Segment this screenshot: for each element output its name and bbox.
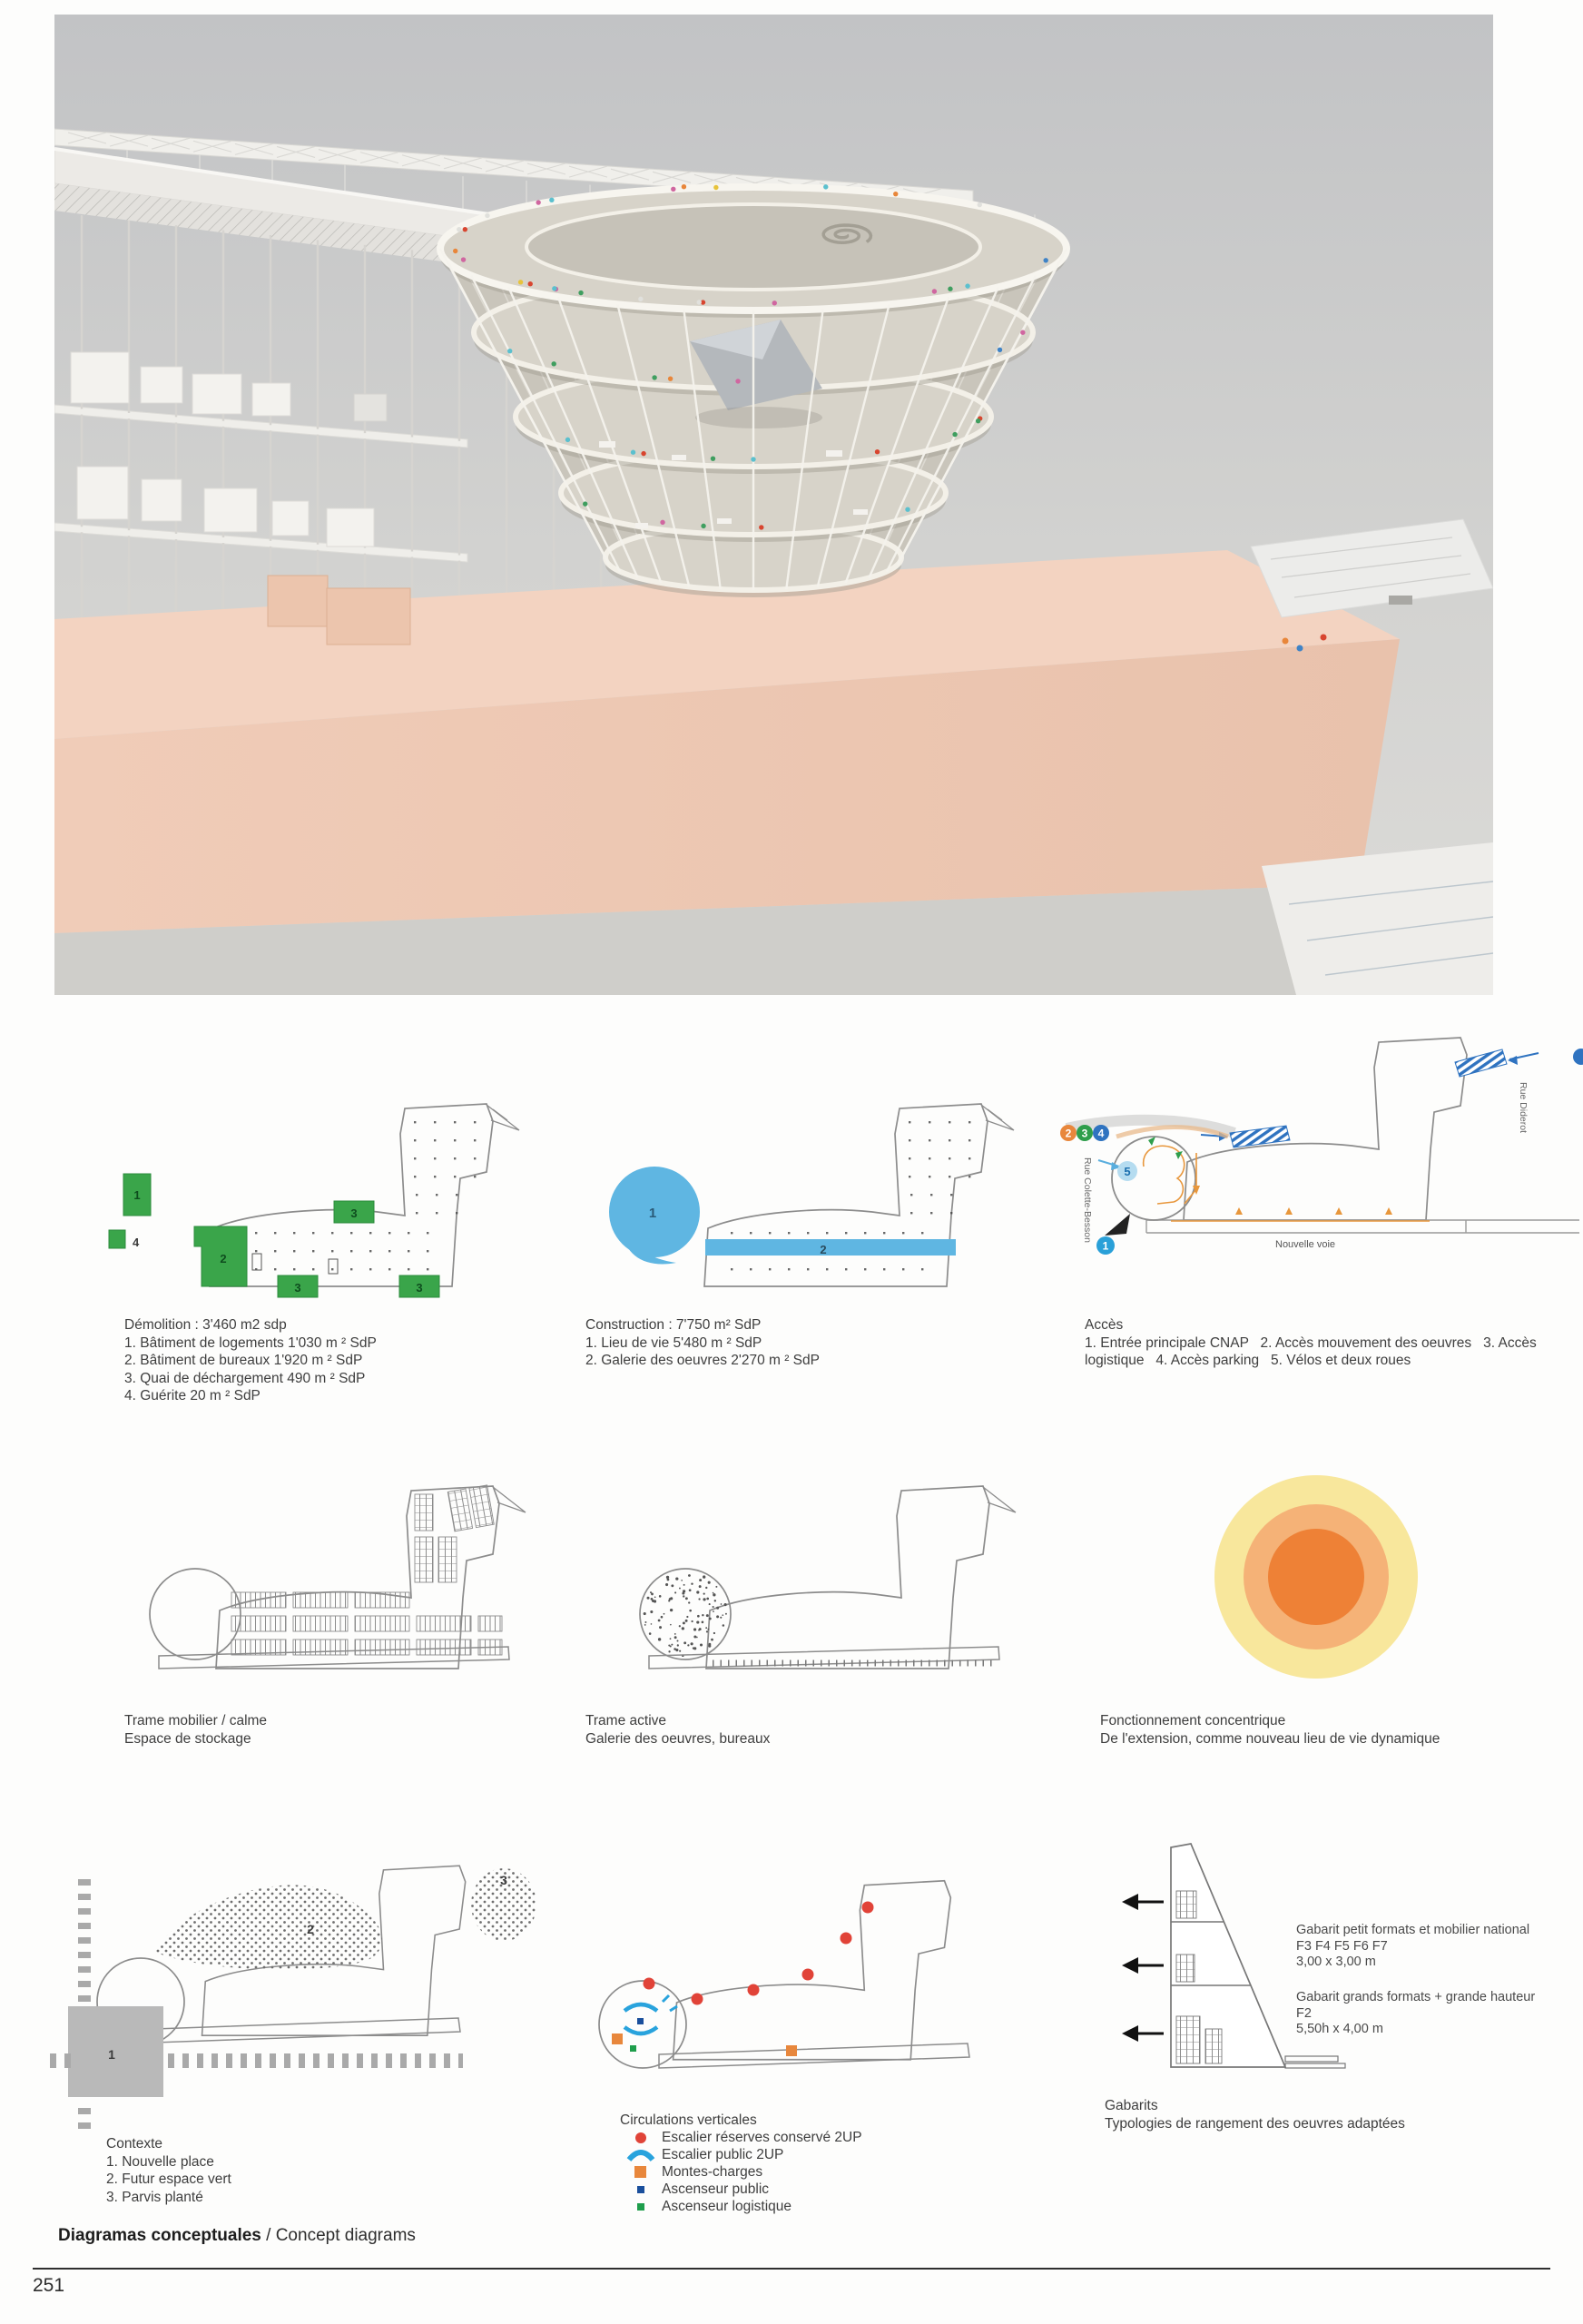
footer-title-rest: / Concept diagrams	[261, 2226, 416, 2245]
legend-label: Escalier réserves conservé 2UP	[662, 2129, 862, 2147]
page-footer-title: Diagramas conceptuales / Concept diagram…	[58, 2226, 416, 2246]
navy-square-icon	[620, 2186, 662, 2194]
legend-item: Ascenseur logistique	[620, 2199, 1037, 2216]
concentric-caption: Fonctionnement concentrique De l'extensi…	[1100, 1712, 1581, 1748]
street-label-right: Rue Diderot	[1518, 1082, 1529, 1133]
green-space-zone	[154, 1885, 382, 1969]
caption-title: Contexte	[106, 2135, 487, 2153]
street-label-left: Rue Colette-Besson	[1082, 1157, 1093, 1243]
model-photo-graphic	[54, 15, 1493, 995]
badge-5: 5	[1124, 1165, 1130, 1178]
caption-line: 2. Bâtiment de bureaux 1'920 m ² SdP	[124, 1352, 560, 1370]
construction-caption: Construction : 7'750 m² SdP 1. Lieu de v…	[585, 1316, 1021, 1370]
construction-diagram: 1 2	[585, 1094, 1021, 1307]
access-badges: 2 3 4 5 1	[1060, 1125, 1137, 1255]
level-arrows	[1122, 1894, 1164, 2042]
zone-label: 3	[416, 1281, 422, 1295]
context-diagram: 1 2 3	[50, 1843, 531, 2133]
concentric-diagram	[1112, 1471, 1525, 1684]
shelving-grids	[231, 1485, 502, 1655]
caption-title: Trame mobilier / calme	[124, 1712, 560, 1730]
new-square-zone	[68, 2006, 163, 2097]
construction-zones: 1 2	[609, 1167, 956, 1265]
model-photo	[54, 15, 1493, 995]
caption-line: Galerie des oeuvres, bureaux	[585, 1730, 1021, 1748]
legend-label: Ascenseur public	[662, 2181, 769, 2199]
zone-label: 1	[649, 1206, 656, 1221]
zone-label: 2	[820, 1243, 826, 1256]
legend-item: Escalier réserves conservé 2UP	[620, 2130, 1037, 2147]
zone-label: 4	[133, 1236, 140, 1249]
caption-line: 1. Entrée principale CNAP 2. Accès mouve…	[1085, 1334, 1582, 1370]
label-line: Gabarit petit formats et mobilier nation…	[1296, 1923, 1568, 1939]
caption-line: De l'extension, comme nouveau lieu de vi…	[1100, 1730, 1581, 1748]
demolition-zones: 1 2 3 3 3 4	[109, 1174, 439, 1297]
badge-1: 1	[1103, 1240, 1109, 1253]
access-diagram: 2 3 4 5 1 Rue Colette-Besson Rue Diderot…	[1048, 1035, 1583, 1307]
caption-title: Démolition : 3'460 m2 sdp	[124, 1316, 560, 1334]
inner-ring	[1268, 1529, 1364, 1625]
legend-label: Montes-charges	[662, 2163, 762, 2181]
label-line: 5,50h x 4,00 m	[1296, 2022, 1568, 2038]
entrance-arrow	[1105, 1214, 1130, 1236]
caption-line: Espace de stockage	[124, 1730, 560, 1748]
green-square-icon	[620, 2203, 662, 2211]
caption-line: 3. Parvis planté	[106, 2189, 487, 2207]
page-number: 251	[33, 2275, 64, 2297]
caption-line: 1. Bâtiment de logements 1'030 m ² SdP	[124, 1334, 560, 1353]
legend-item: Ascenseur public	[620, 2181, 1037, 2199]
red-dot-icon	[620, 2132, 662, 2144]
context-caption: Contexte 1. Nouvelle place 2. Futur espa…	[106, 2135, 487, 2206]
zone-label: 1	[133, 1188, 140, 1202]
zone-label: 3	[294, 1281, 300, 1295]
badge-2: 2	[1066, 1128, 1072, 1140]
caption-title: Construction : 7'750 m² SdP	[585, 1316, 1021, 1334]
caption-title: Accès	[1085, 1316, 1582, 1334]
gabarit-small-label: Gabarit petit formats et mobilier nation…	[1296, 1923, 1568, 1971]
book-page: 1 2 3 3 3 4 1 2	[0, 0, 1583, 2324]
circulation-legend: Circulations verticales Escalier réserve…	[620, 2112, 1037, 2216]
zone-label: 2	[220, 1252, 226, 1265]
caption-line: 1. Nouvelle place	[106, 2153, 487, 2171]
badge-4: 4	[1098, 1128, 1105, 1140]
circulation-markers	[612, 1902, 874, 2057]
activity-scribble	[644, 1574, 727, 1657]
storage-caption: Trame mobilier / calme Espace de stockag…	[124, 1712, 560, 1748]
access-caption: Accès 1. Entrée principale CNAP 2. Accès…	[1085, 1316, 1582, 1370]
caption-line: 1. Lieu de vie 5'480 m ² SdP	[585, 1334, 1021, 1353]
legend-label: Ascenseur logistique	[662, 2198, 791, 2216]
legend-item: Escalier public 2UP	[620, 2147, 1037, 2164]
gabarit-large-label: Gabarit grands formats + grande hauteur …	[1296, 1990, 1568, 2038]
active-caption: Trame active Galerie des oeuvres, bureau…	[585, 1712, 1021, 1748]
storage-grid-diagram	[95, 1469, 531, 1687]
caption-line: 2. Futur espace vert	[106, 2171, 487, 2189]
top-deck-inner-ring	[526, 204, 980, 290]
label-line: 3,00 x 3,00 m	[1296, 1955, 1568, 1971]
badge-3: 3	[1082, 1128, 1088, 1140]
legend-label: Escalier public 2UP	[662, 2146, 783, 2164]
pink-base	[54, 550, 1400, 933]
caption-line: 2. Galerie des oeuvres 2'270 m ² SdP	[585, 1352, 1021, 1370]
street-label-bottom: Nouvelle voie	[1275, 1239, 1335, 1250]
active-grid-diagram	[585, 1469, 1021, 1687]
caption-title: Fonctionnement concentrique	[1100, 1712, 1581, 1730]
gabarits-caption: Gabarits Typologies de rangement des oeu…	[1105, 2097, 1577, 2132]
orange-square-icon	[620, 2166, 662, 2179]
circulation-diagram	[561, 1847, 997, 2115]
zone-label: 3	[350, 1206, 357, 1220]
zone-label: 1	[108, 2047, 115, 2062]
demolition-caption: Démolition : 3'460 m2 sdp 1. Bâtiment de…	[124, 1316, 560, 1405]
blue-arc-icon	[620, 2150, 662, 2161]
label-line: F2	[1296, 2006, 1568, 2023]
legend-title: Circulations verticales	[620, 2112, 1037, 2130]
caption-line: 3. Quai de déchargement 490 m ² SdP	[124, 1370, 560, 1388]
footer-rule	[33, 2268, 1550, 2270]
caption-line: Typologies de rangement des oeuvres adap…	[1105, 2115, 1577, 2133]
label-line: Gabarit grands formats + grande hauteur	[1296, 1990, 1568, 2006]
caption-title: Trame active	[585, 1712, 1021, 1730]
zone-label: 3	[500, 1873, 507, 1887]
caption-title: Gabarits	[1105, 2097, 1577, 2115]
footer-title-bold: Diagramas conceptuales	[58, 2226, 261, 2245]
zone-label: 2	[307, 1922, 314, 1936]
label-line: F3 F4 F5 F6 F7	[1296, 1939, 1568, 1955]
caption-line: 4. Guérite 20 m ² SdP	[124, 1387, 560, 1405]
legend-item: Montes-charges	[620, 2164, 1037, 2181]
demolition-diagram: 1 2 3 3 3 4	[100, 1094, 526, 1307]
